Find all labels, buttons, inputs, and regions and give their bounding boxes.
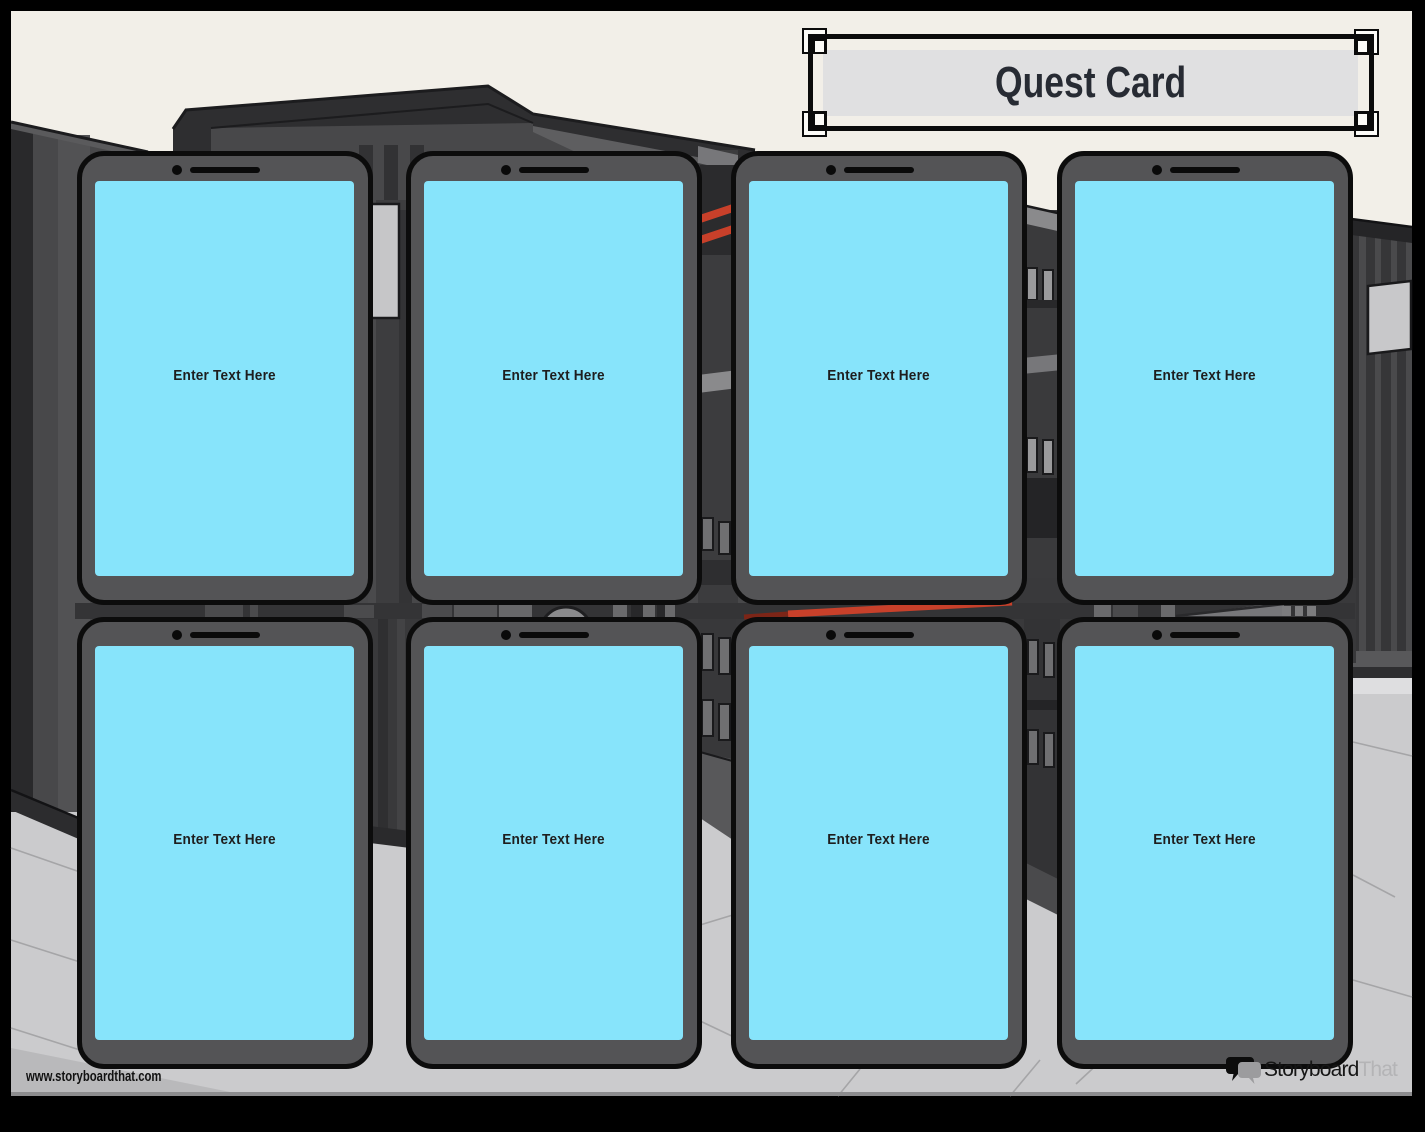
svg-text:Storyboard: Storyboard bbox=[1264, 1058, 1359, 1081]
svg-text:That: That bbox=[1359, 1058, 1398, 1081]
